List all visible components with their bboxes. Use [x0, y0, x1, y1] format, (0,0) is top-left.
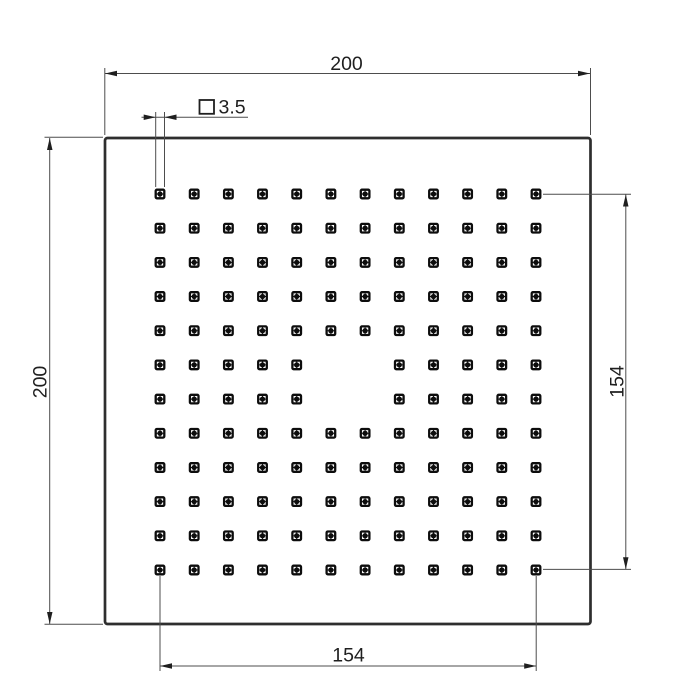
svg-text:154: 154	[607, 365, 629, 398]
svg-text:200: 200	[30, 366, 52, 399]
svg-text:3.5: 3.5	[219, 97, 246, 119]
svg-text:200: 200	[330, 53, 363, 75]
svg-text:154: 154	[332, 644, 365, 666]
